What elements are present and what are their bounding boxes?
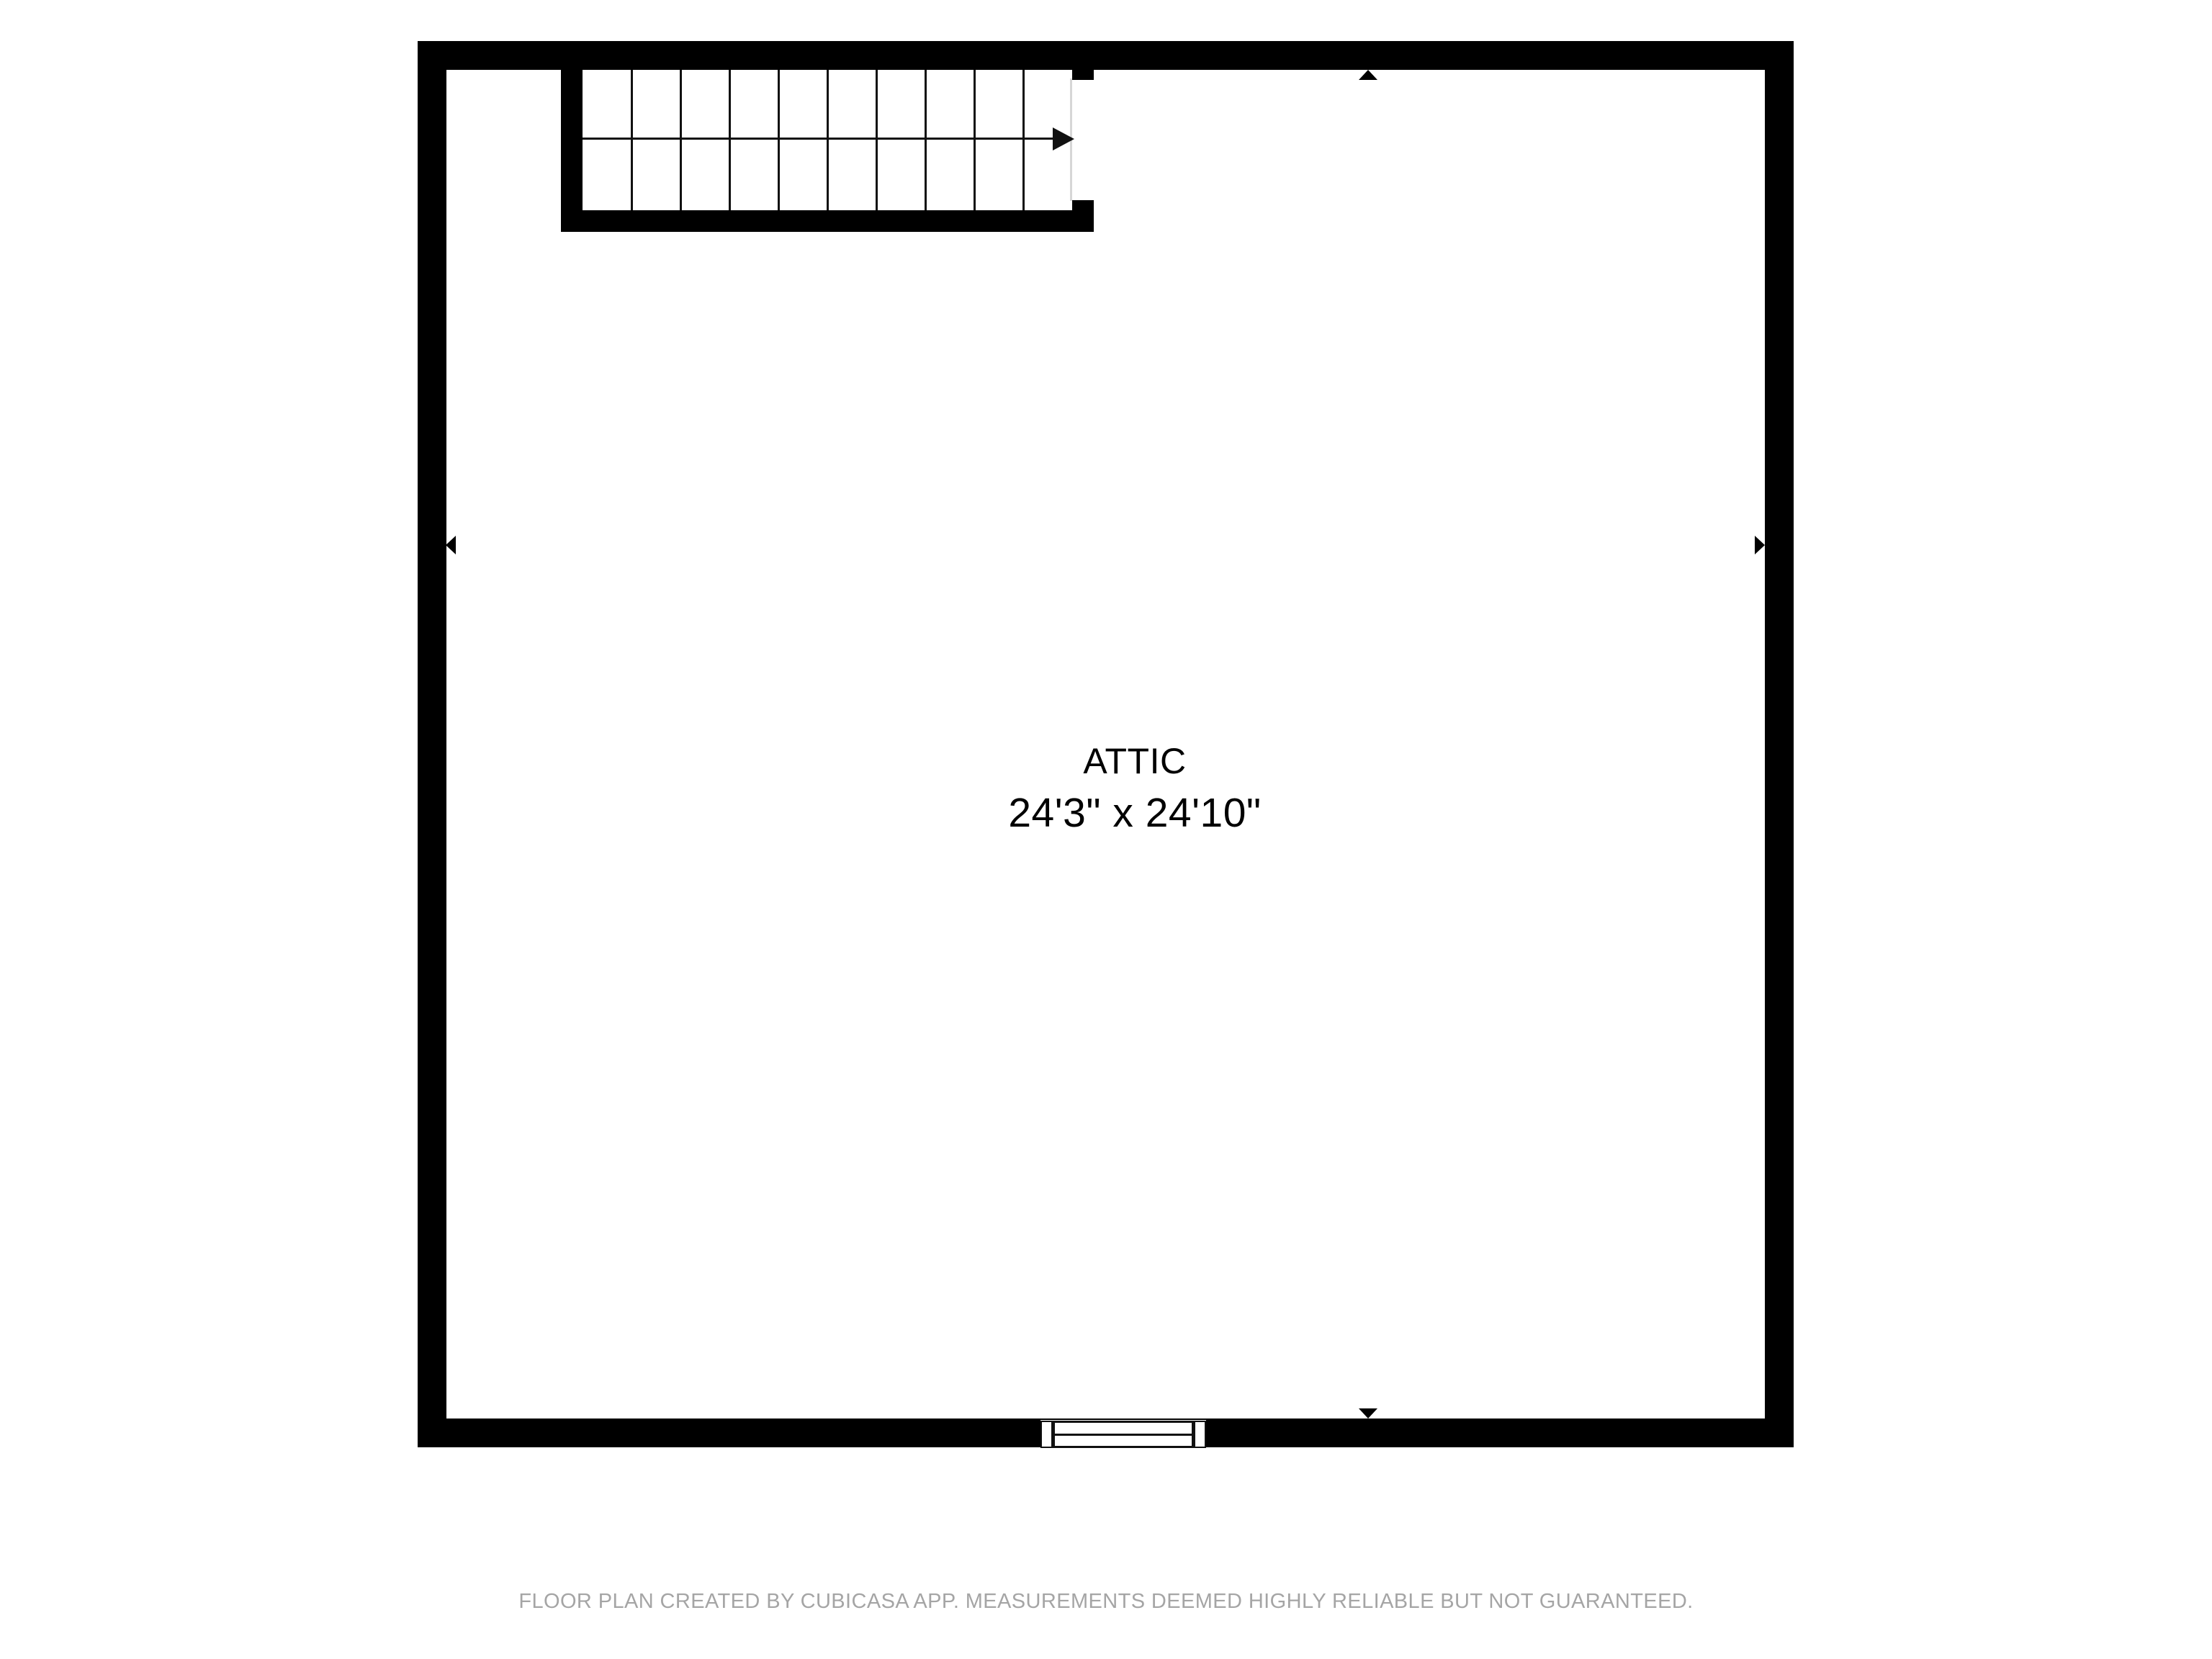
left-triangle-marker-icon [446,536,456,554]
stair-opening-jamb-top [1072,70,1094,80]
stair-tread-line [778,70,780,210]
window-jamb-right [1194,1421,1206,1448]
room-dimensions: 24'3" x 24'10" [1008,788,1261,838]
down-triangle-marker-icon [1359,1408,1377,1419]
room-label: ATTIC 24'3" x 24'10" [1008,740,1261,838]
stair-treads [583,70,1072,210]
window-sash-divider [1055,1434,1192,1436]
stair-opening-jamb-bottom [1072,200,1094,210]
stair-tread-line [827,70,829,210]
up-triangle-marker-icon [1359,70,1377,80]
stair-tread-line [1022,70,1025,210]
stair-tread-line [631,70,633,210]
stair-tread-line [729,70,731,210]
stair-tread-line [925,70,927,210]
footer-disclaimer: FLOOR PLAN CREATED BY CUBICASA APP. MEAS… [518,1590,1693,1614]
stair-tread-line [876,70,878,210]
floor-plan: ATTIC 24'3" x 24'10" FLOOR PLAN CREATED … [0,0,2212,1659]
window-symbol [1040,1420,1206,1449]
stair-tread-line [974,70,976,210]
stair-tread-line [680,70,682,210]
window-frame [1053,1421,1194,1448]
right-triangle-marker-icon [1755,536,1765,554]
window-jamb-left [1040,1421,1053,1448]
stair-left-wall [561,70,583,232]
room-name: ATTIC [1008,740,1261,782]
right-arrow-icon [1053,127,1074,150]
stair-direction-arrow [583,138,1056,140]
stair-bottom-wall [561,210,1094,232]
